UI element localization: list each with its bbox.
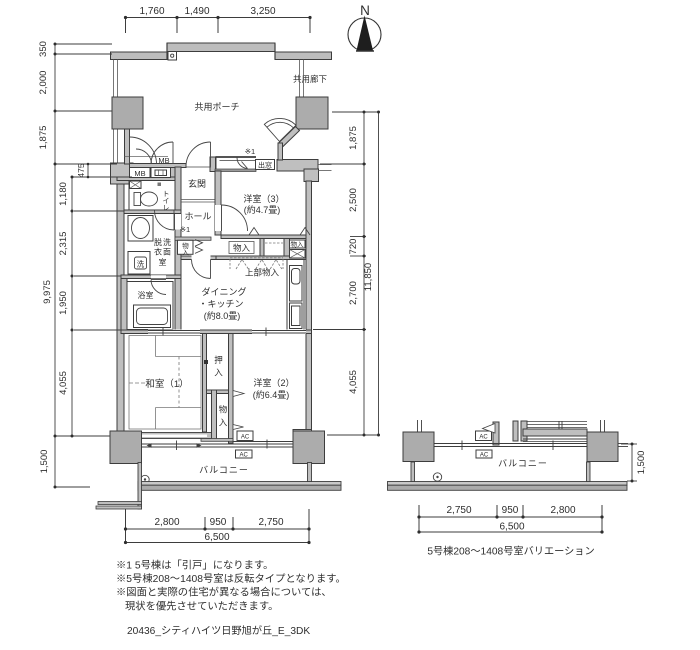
svg-text:2,500: 2,500 (348, 188, 359, 212)
svg-text:出窓: 出窓 (258, 161, 272, 170)
svg-text:押: 押 (214, 355, 223, 365)
svg-text:1,875: 1,875 (348, 126, 359, 150)
svg-text:玄関: 玄関 (188, 178, 206, 189)
svg-text:室: 室 (159, 257, 167, 267)
svg-text:1,180: 1,180 (58, 182, 69, 206)
svg-text:950: 950 (210, 517, 227, 528)
svg-text:※図面と実際の住宅が異なる場合については、: ※図面と実際の住宅が異なる場合については、 (116, 586, 332, 599)
svg-text:脱: 脱 (154, 237, 162, 247)
svg-text:(約6.4畳): (約6.4畳) (253, 389, 290, 400)
svg-text:1,490: 1,490 (184, 6, 209, 17)
svg-text:5号棟208～1408号室バリエーション: 5号棟208～1408号室バリエーション (427, 545, 594, 558)
svg-text:(約4.7畳): (約4.7畳) (244, 204, 281, 215)
svg-text:4,055: 4,055 (348, 370, 359, 394)
svg-text:面: 面 (163, 248, 171, 257)
svg-text:※1 5号棟は「引戸」になります。: ※1 5号棟は「引戸」になります。 (116, 559, 273, 572)
svg-text:MB: MB (158, 156, 169, 165)
svg-text:洋室（2）: 洋室（2） (253, 377, 294, 388)
svg-text:9,975: 9,975 (42, 280, 53, 304)
svg-text:※1: ※1 (180, 225, 190, 234)
svg-text:(約8.0畳): (約8.0畳) (204, 310, 241, 321)
svg-text:入: 入 (214, 368, 223, 378)
svg-text:1,950: 1,950 (58, 291, 69, 315)
svg-text:ダイニング: ダイニング (201, 286, 246, 297)
svg-text:入: 入 (219, 418, 228, 428)
svg-text:6,500: 6,500 (204, 532, 229, 543)
svg-text:3,250: 3,250 (250, 6, 275, 17)
svg-text:バルコニー: バルコニー (199, 465, 249, 475)
svg-text:AC: AC (241, 435, 250, 441)
svg-text:AC: AC (240, 453, 249, 459)
svg-text:ト: ト (163, 191, 170, 198)
svg-text:475: 475 (76, 163, 86, 177)
svg-text:2,800: 2,800 (154, 517, 179, 528)
svg-text:物入: 物入 (291, 240, 305, 249)
svg-text:入: 入 (182, 250, 189, 257)
svg-text:衣: 衣 (154, 247, 162, 257)
svg-text:洋室（3）: 洋室（3） (243, 193, 284, 204)
svg-text:1,875: 1,875 (38, 126, 49, 150)
svg-text:和室（1）: 和室（1） (145, 378, 188, 390)
svg-text:共用ポーチ: 共用ポーチ (194, 102, 239, 112)
svg-text:洗: 洗 (137, 259, 145, 269)
svg-text:物: 物 (219, 405, 228, 415)
svg-text:2,800: 2,800 (550, 505, 575, 516)
svg-text:2,000: 2,000 (38, 71, 49, 95)
svg-text:1,500: 1,500 (39, 450, 50, 474)
svg-text:2,315: 2,315 (58, 232, 69, 256)
svg-text:イ: イ (163, 198, 170, 205)
svg-text:N: N (360, 3, 370, 18)
svg-text:MB: MB (134, 169, 145, 178)
svg-text:現状を優先させていただきます。: 現状を優先させていただきます。 (125, 600, 278, 613)
svg-text:・キッチン: ・キッチン (198, 299, 243, 309)
svg-text:上部物入: 上部物入 (245, 268, 280, 278)
svg-text:浴室: 浴室 (138, 290, 154, 300)
svg-text:物入: 物入 (233, 243, 251, 253)
svg-text:20436_シティハイツ日野旭が丘_E_3DK: 20436_シティハイツ日野旭が丘_E_3DK (127, 624, 310, 637)
svg-text:1,760: 1,760 (139, 6, 164, 17)
svg-text:350: 350 (38, 41, 49, 57)
svg-text:950: 950 (502, 505, 519, 516)
svg-text:11,850: 11,850 (363, 263, 374, 291)
svg-text:レ: レ (163, 205, 170, 212)
svg-text:1,500: 1,500 (636, 451, 647, 475)
svg-text:※5号棟208～1408号室は反転タイプとなります。: ※5号棟208～1408号室は反転タイプとなります。 (116, 572, 346, 585)
svg-text:洗: 洗 (163, 237, 171, 247)
svg-text:AC: AC (479, 435, 488, 441)
svg-text:※1: ※1 (245, 147, 255, 156)
svg-text:2,700: 2,700 (348, 281, 359, 305)
svg-text:AC: AC (480, 453, 489, 459)
svg-text:720: 720 (348, 239, 359, 255)
svg-text:6,500: 6,500 (499, 522, 524, 533)
svg-text:2,750: 2,750 (258, 517, 283, 528)
svg-text:バルコニー: バルコニー (498, 459, 548, 469)
svg-text:共用廊下: 共用廊下 (293, 74, 328, 84)
svg-text:4,055: 4,055 (58, 371, 69, 395)
svg-text:ホール: ホール (184, 212, 211, 222)
svg-text:2,750: 2,750 (446, 505, 471, 516)
